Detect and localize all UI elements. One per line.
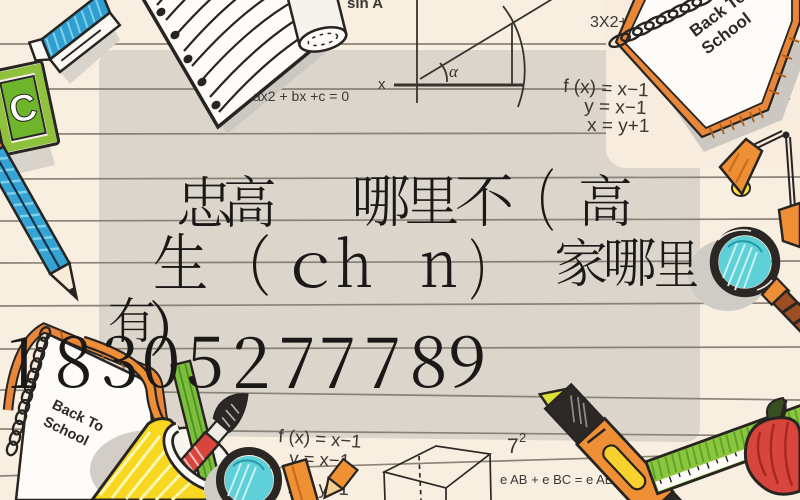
svg-text:sin A: sin A (347, 0, 383, 12)
svg-text:7: 7 (507, 435, 519, 458)
svg-text:e AB + e BC = e AB: e AB + e BC = e AB (500, 472, 613, 487)
svg-text:x: x (378, 76, 386, 93)
svg-text:ax2 + bx +c = 0: ax2 + bx +c = 0 (253, 88, 349, 104)
svg-text:x = y+1: x = y+1 (587, 115, 650, 137)
svg-text:α: α (449, 62, 459, 81)
svg-text:2: 2 (519, 430, 526, 445)
